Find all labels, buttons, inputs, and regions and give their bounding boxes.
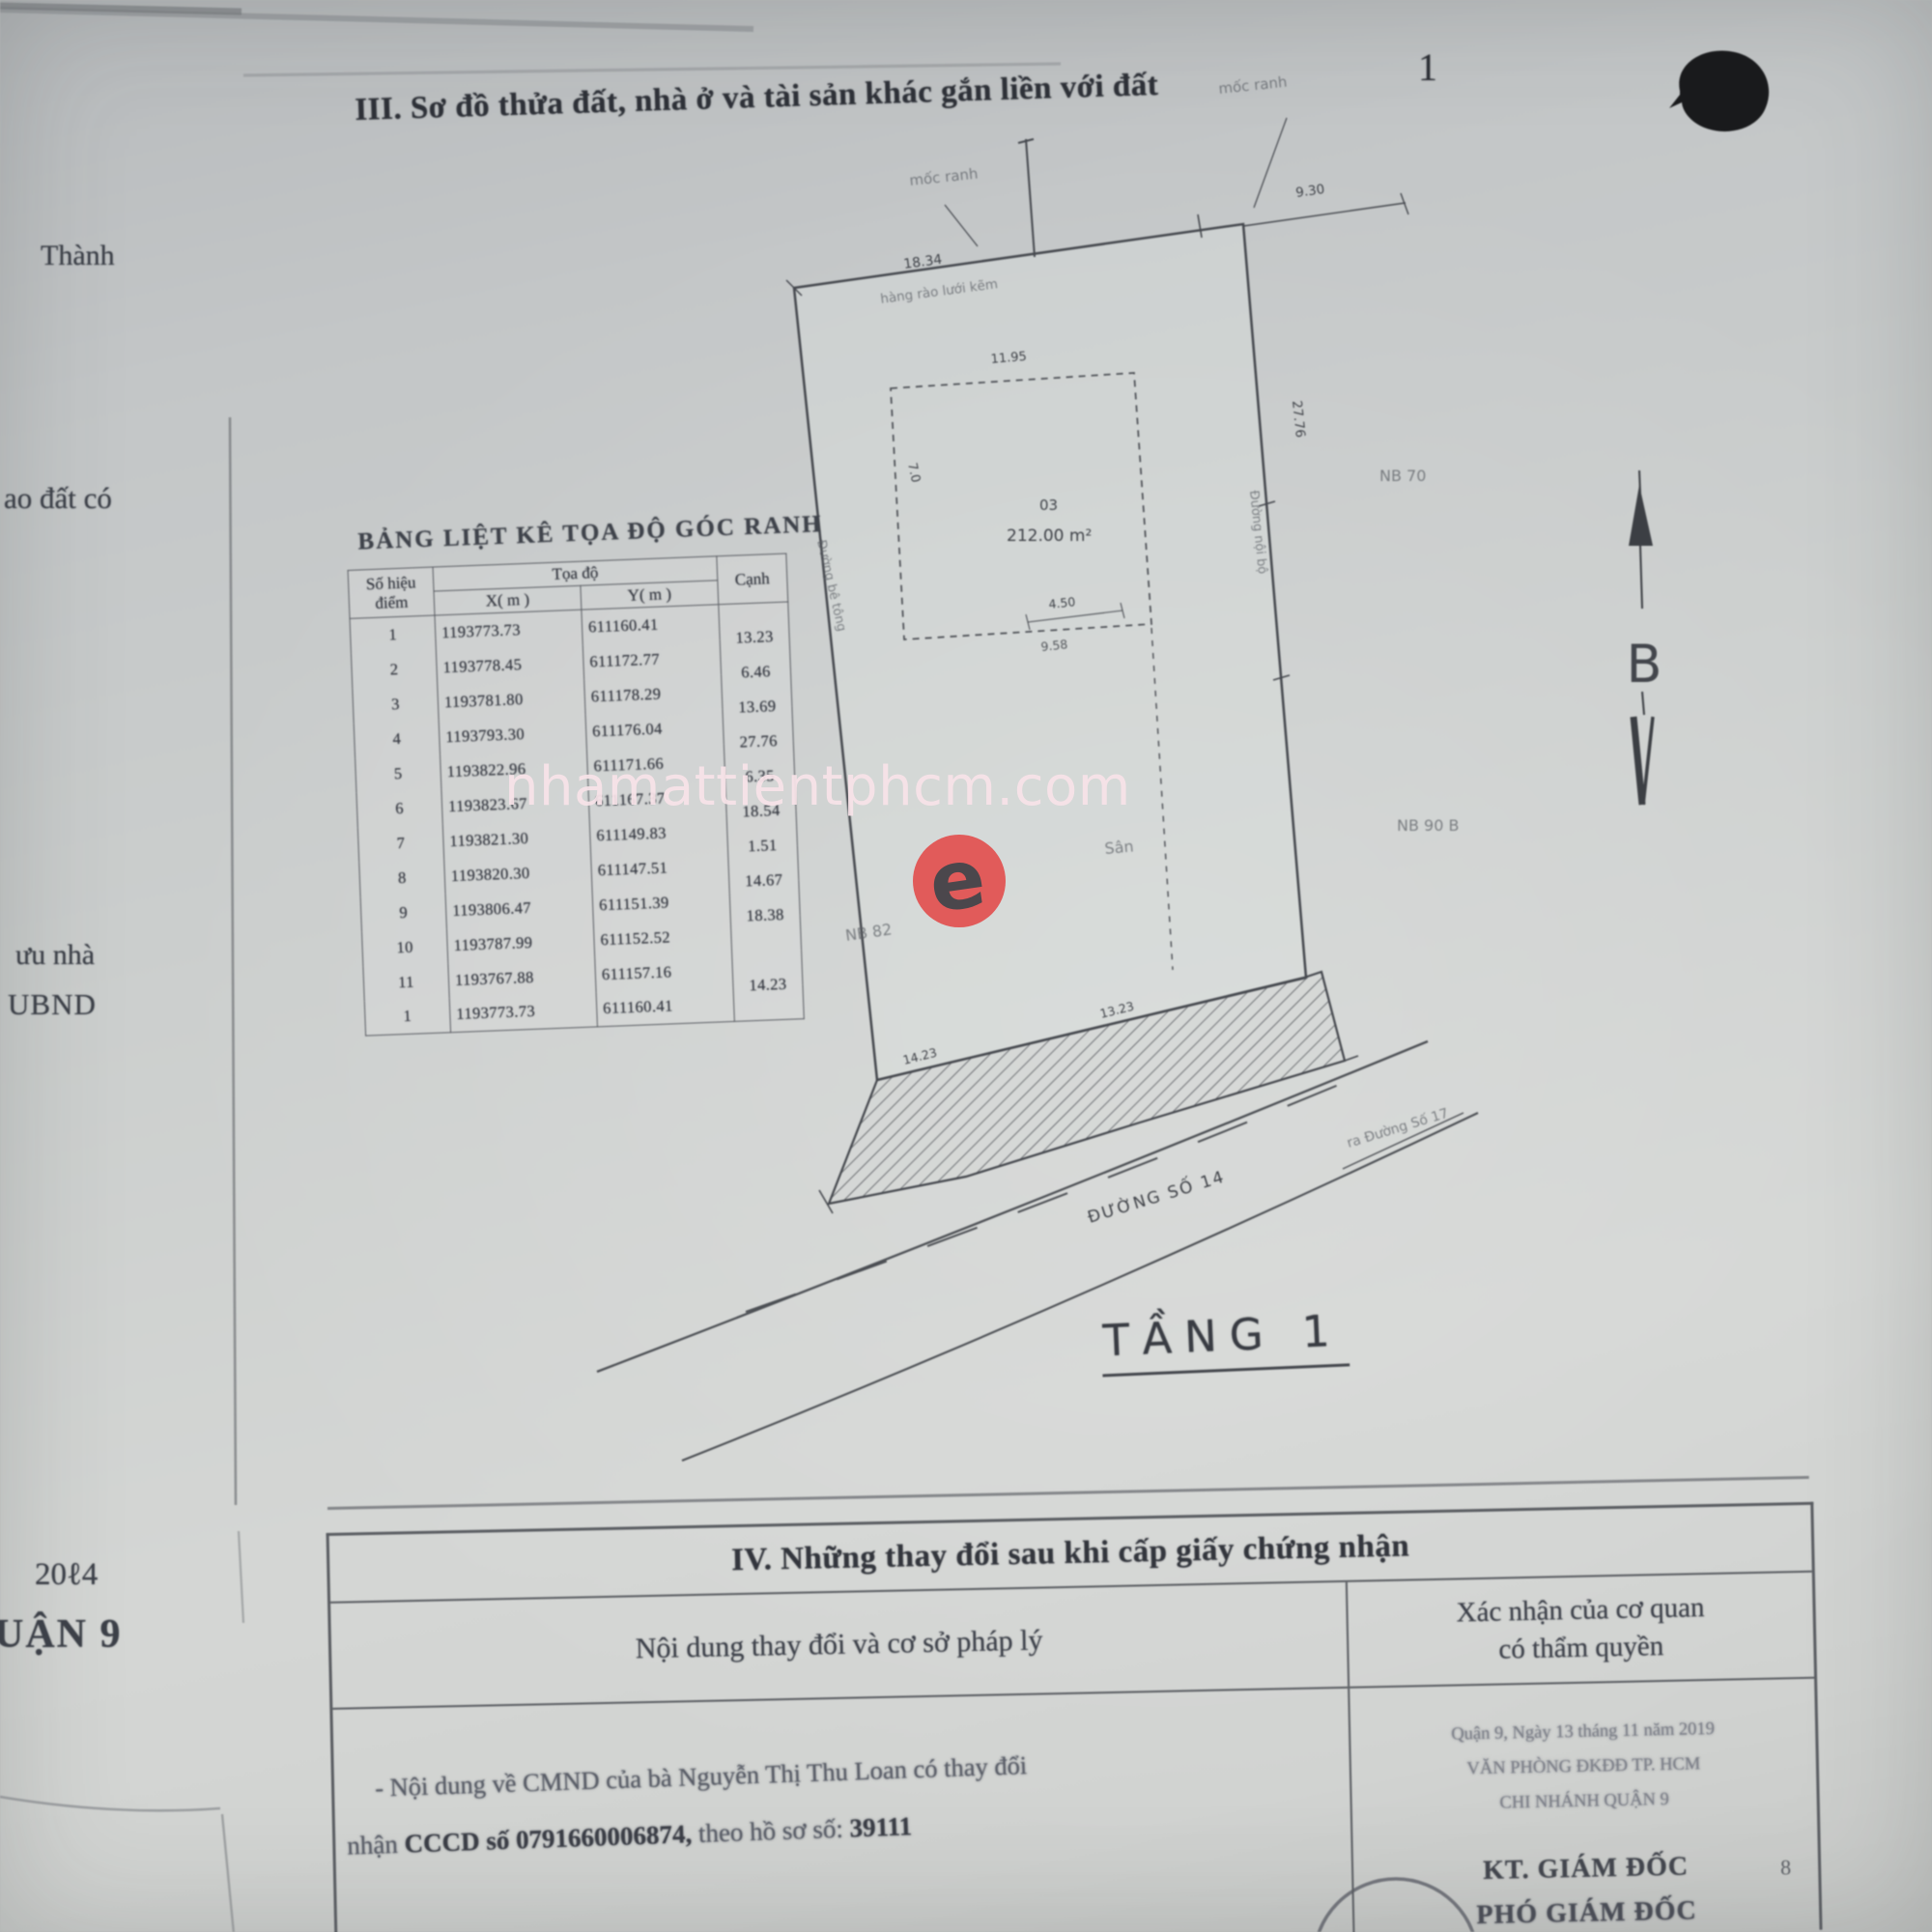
point-cell: 2 [351, 650, 437, 688]
edge-value: 18.38 [746, 904, 784, 924]
north-arrow-icon: B [1626, 470, 1662, 805]
col-confirm-line2: có thẩm quyền [1498, 1628, 1664, 1669]
col-point-line1: Số hiệu [366, 573, 416, 593]
x-cell: 1193773.73 [449, 992, 597, 1033]
y-cell: 611149.83 [589, 813, 727, 853]
x-cell: 1193793.30 [439, 714, 586, 754]
point-cell: 3 [353, 685, 439, 723]
x-cell: 1193820.30 [444, 853, 592, 894]
area-label: 212.00 m² [1007, 526, 1092, 546]
lot-number: 03 [1039, 497, 1058, 514]
y-cell: 611176.04 [585, 709, 724, 749]
col-edge-header: Cạnh [717, 554, 788, 605]
y-cell: 611160.41 [582, 605, 720, 644]
confirm-date-line: Quận 9, Ngày 13 tháng 11 năm 2019 [1350, 1718, 1815, 1747]
y-cell: 611167.37 [588, 779, 726, 818]
x-cell: 1193773.73 [435, 610, 582, 650]
marker-label-left: mốc ranh [909, 165, 980, 189]
margin-fragment-uunha: ưu nhà [15, 939, 95, 972]
dim-inner-bottom: 4.50 [1048, 594, 1076, 611]
north-letter: B [1626, 634, 1662, 695]
edge-value: 13.69 [738, 696, 777, 717]
section4: IV. Những thay đổi sau khi cấp giấy chứn… [326, 1476, 1825, 1932]
y-cell: 611171.66 [586, 744, 724, 783]
point-cell: 1 [364, 998, 450, 1036]
dim-right-edge: 27.76 [1289, 400, 1308, 439]
margin-fragment-aodatco: ao đất có [4, 481, 112, 516]
page-marker: 1 [1418, 44, 1437, 90]
edge-value: 6.35 [745, 766, 775, 786]
point-cell: 1 [350, 615, 436, 653]
section4-body-row: - Nội dung về CMND của bà Nguyễn Thị Thu… [332, 1679, 1819, 1932]
x-cell: 1193781.80 [438, 679, 585, 720]
x-cell: 1193787.99 [446, 923, 594, 963]
edge-value: 6.46 [741, 662, 771, 682]
point-cell: 7 [357, 824, 443, 862]
col-point-header: Số hiệu điểm [348, 567, 435, 618]
change-entry-line2: nhận CCCD số 0791660006874, theo hồ sơ s… [347, 1811, 913, 1861]
y-cell: 611172.77 [582, 639, 721, 679]
neighbor-right-top: NB 70 [1379, 467, 1426, 485]
confirmation-cell: Quận 9, Ngày 13 tháng 11 năm 2019 VĂN PH… [1350, 1679, 1819, 1932]
x-cell: 1193806.47 [445, 888, 593, 928]
road-exit-label: ra Đường Số 17 [1345, 1105, 1450, 1151]
entry2-cccd: CCCD số 0791660006874, [404, 1819, 693, 1858]
confirm-branch-line: CHI NHÁNH QUẬN 9 [1352, 1787, 1817, 1817]
margin-fragment-ubnd: UBND [8, 987, 97, 1022]
edge-value: 14.23 [749, 974, 787, 994]
x-cell: 1193778.45 [436, 644, 583, 685]
entry2-normal1: nhận [347, 1830, 405, 1861]
point-cell: 6 [356, 789, 442, 827]
coordinate-table: Số hiệu điểm Tọa độ Cạnh X( m ) Y( m ) 1… [348, 554, 805, 1037]
road-name-label: ĐƯỜNG SỐ 14 [1084, 1164, 1227, 1228]
point-cell: 8 [359, 859, 445, 896]
scanned-land-certificate-photo: B mốc ranh mốc ranh hàng rào lưới kẽm 18… [0, 0, 1932, 1932]
col-confirm-header: Xác nhận của cơ quan có thẩm quyền [1348, 1573, 1814, 1687]
photo-layer: B mốc ranh mốc ranh hàng rào lưới kẽm 18… [0, 0, 1932, 1932]
dim-inner-bottom2: 9.58 [1040, 637, 1068, 654]
y-cell: 611152.52 [593, 918, 731, 957]
edge-value: 27.76 [739, 731, 778, 752]
edge-value: 13.23 [735, 627, 774, 647]
ink-blob [1669, 51, 1769, 132]
coordinate-table-group: BẢNG LIỆT KÊ TỌA ĐỘ GÓC RANH Số hiệu điể… [346, 511, 841, 1037]
yard-label: Sân [1104, 837, 1135, 858]
signer-title: KT. GIÁM ĐỐC [1353, 1849, 1819, 1889]
col-confirm-line1: Xác nhận của cơ quan [1456, 1589, 1705, 1633]
y-cell: 611147.51 [591, 848, 729, 888]
change-entry-cell: - Nội dung về CMND của bà Nguyễn Thị Thu… [332, 1689, 1354, 1932]
edge-value: 1.51 [748, 836, 778, 856]
x-cell: 1193767.88 [448, 957, 596, 998]
x-cell: 1193823.67 [441, 783, 589, 824]
edge-value: 18.54 [742, 800, 781, 820]
col-content-header: Nội dung thay đổi và cơ sở pháp lý [330, 1582, 1350, 1708]
margin-fragment-thanh: Thành [41, 240, 115, 272]
floor-label: TẦNG 1 [1100, 1304, 1350, 1377]
y-cell: 611157.16 [595, 952, 733, 991]
edge-cell: 13.23 [719, 602, 789, 639]
y-cell: 611160.41 [596, 986, 734, 1026]
point-cell: 4 [354, 720, 440, 757]
point-cell: 10 [361, 928, 447, 966]
y-cell: 611178.29 [584, 674, 723, 714]
x-cell: 1193821.30 [442, 818, 590, 859]
dim-top-right: 9.30 [1294, 182, 1325, 201]
confirm-office-line: VĂN PHÒNG ĐKĐĐ TP. HCM [1351, 1752, 1816, 1782]
margin-fragment-quan9: UẬN 9 [0, 1611, 123, 1658]
margin-fragment-year: 20ℓ4 [35, 1557, 98, 1593]
signer-role: PHÓ GIÁM ĐỐC [1354, 1893, 1820, 1932]
survey-pole [1026, 139, 1035, 257]
edge-cell: 14.23 [732, 950, 803, 987]
section4-table: IV. Những thay đổi sau khi cấp giấy chứn… [327, 1502, 1823, 1932]
col-point-line2: điểm [375, 592, 409, 611]
x-cell: 1193822.96 [440, 749, 588, 789]
change-entry-line1: - Nội dung về CMND của bà Nguyễn Thị Thu… [375, 1750, 1028, 1804]
entry2-dossier: 39111 [849, 1811, 913, 1842]
y-cell: 611151.39 [592, 883, 730, 923]
section4-title: IV. Những thay đổi sau khi cấp giấy chứn… [731, 1528, 1410, 1578]
edge-value: 14.67 [745, 869, 783, 890]
point-cell: 9 [360, 894, 446, 931]
hand-mark: 8 [1780, 1855, 1792, 1880]
entry2-normal2: theo hồ sơ số: [692, 1814, 850, 1849]
point-cell: 11 [363, 963, 449, 1001]
neighbor-right-bottom: NB 90 B [1397, 816, 1459, 835]
point-cell: 5 [355, 754, 441, 792]
